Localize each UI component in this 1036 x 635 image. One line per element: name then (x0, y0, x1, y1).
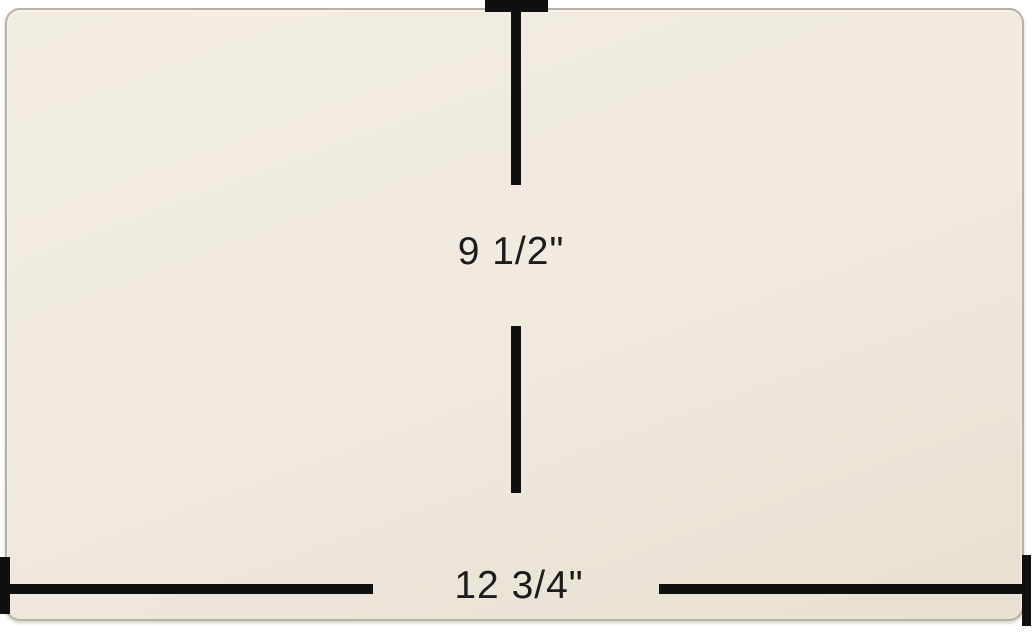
horizontal-dimension-line-right (659, 584, 1026, 594)
vertical-dimension-line-upper (511, 9, 521, 185)
width-dimension-label: 12 3/4" (419, 566, 619, 605)
product-dimension-image: 9 1/2" 12 3/4" (0, 0, 1036, 635)
horizontal-dimension-right-cap (1022, 555, 1031, 626)
vertical-dimension-line-lower (511, 326, 521, 493)
height-dimension-label: 9 1/2" (411, 232, 611, 271)
horizontal-dimension-line-left (0, 584, 373, 594)
